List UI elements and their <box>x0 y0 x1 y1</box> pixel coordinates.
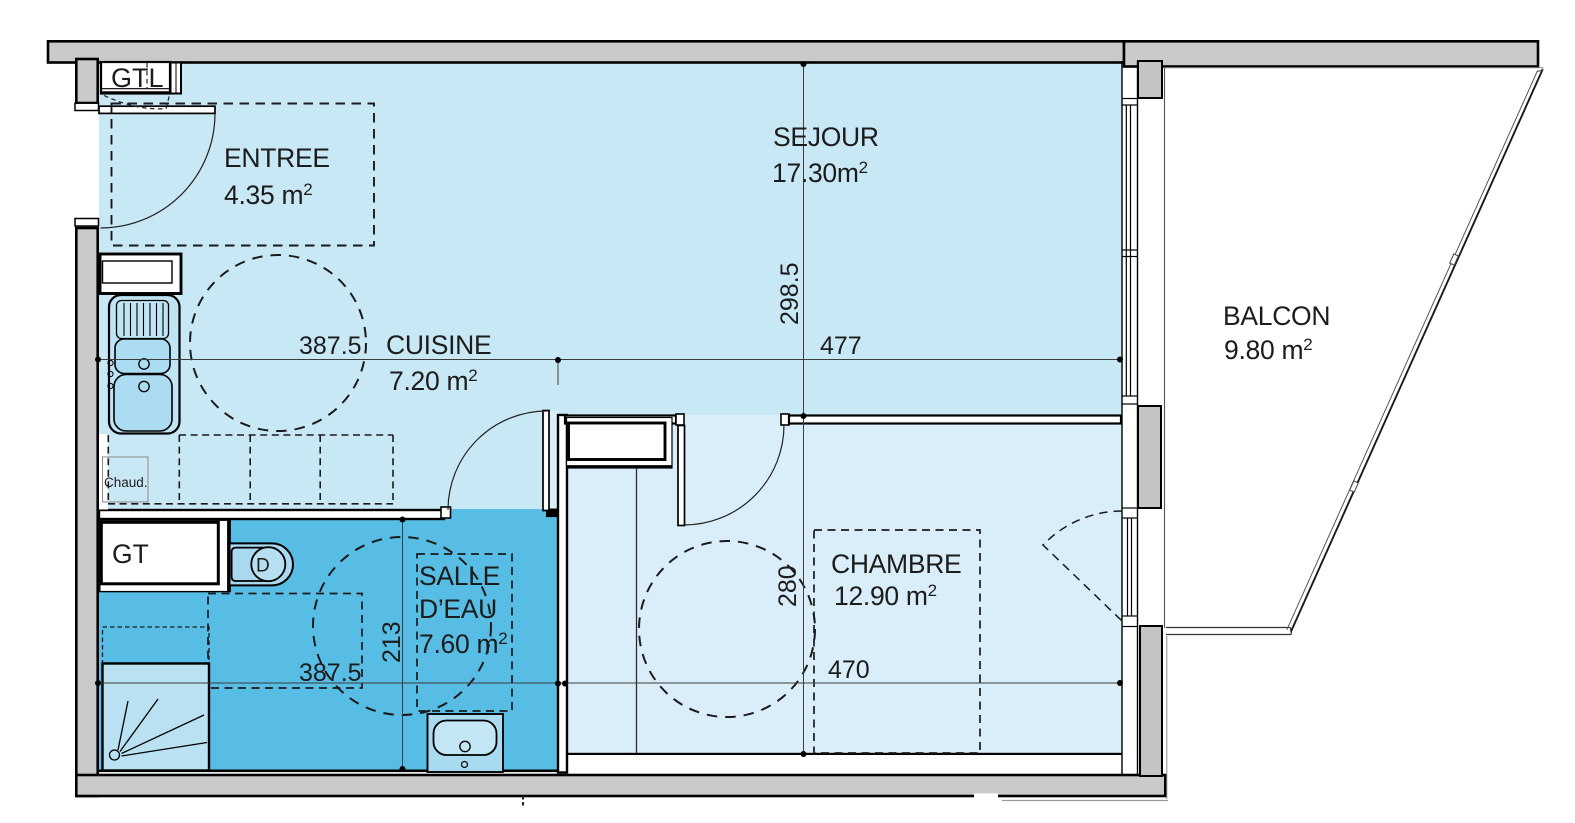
svg-text:9.80 m2: 9.80 m2 <box>1224 335 1312 365</box>
svg-text:280: 280 <box>774 565 802 607</box>
svg-text:387.5: 387.5 <box>299 332 362 360</box>
svg-text:GT: GT <box>112 539 149 569</box>
svg-text:213: 213 <box>378 621 406 663</box>
svg-text:D’EAU: D’EAU <box>419 594 497 624</box>
svg-text:12.90 m2: 12.90 m2 <box>834 581 937 611</box>
svg-text:Chaud.: Chaud. <box>104 475 148 490</box>
svg-text:BALCON: BALCON <box>1223 301 1330 331</box>
svg-text:SALLE: SALLE <box>419 561 500 591</box>
svg-text:477: 477 <box>820 332 862 360</box>
svg-text:CHAMBRE: CHAMBRE <box>831 549 961 579</box>
svg-text:CUISINE: CUISINE <box>386 330 491 360</box>
svg-text:7.60 m2: 7.60 m2 <box>419 629 507 659</box>
svg-text:ENTREE: ENTREE <box>224 143 330 173</box>
svg-text:SEJOUR: SEJOUR <box>773 122 879 152</box>
svg-text:D: D <box>256 556 270 577</box>
svg-text:7.20 m2: 7.20 m2 <box>389 366 477 396</box>
svg-text:GTL: GTL <box>111 63 164 93</box>
svg-text:298.5: 298.5 <box>776 262 804 325</box>
svg-text:17.30m2: 17.30m2 <box>772 158 868 188</box>
svg-text:387.5: 387.5 <box>299 659 362 687</box>
svg-text:4.35 m2: 4.35 m2 <box>224 180 312 210</box>
svg-text:470: 470 <box>828 656 870 684</box>
